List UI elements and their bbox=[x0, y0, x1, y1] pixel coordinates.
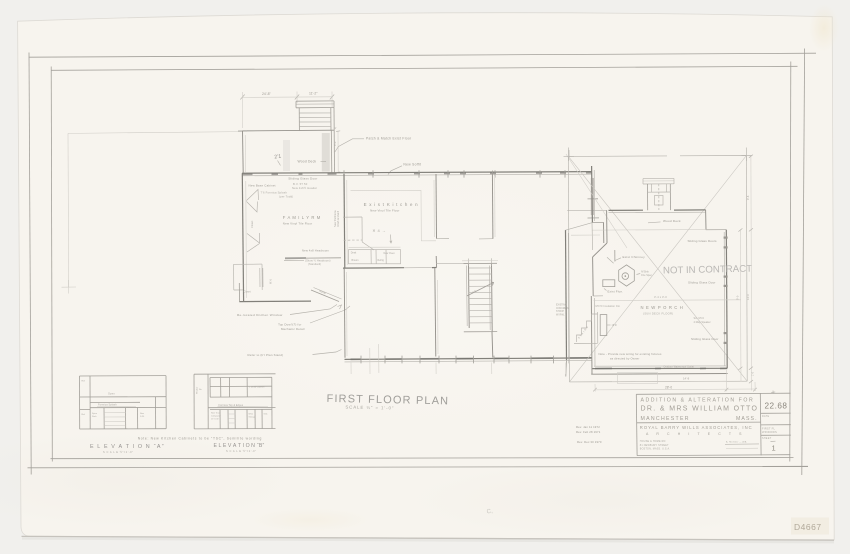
svg-text:18 R: 18 R bbox=[612, 324, 617, 327]
svg-text:Wood Deck: Wood Deck bbox=[298, 160, 317, 164]
svg-text:New Vinyl Tile Floor: New Vinyl Tile Floor bbox=[283, 221, 313, 225]
svg-text:Spice: Spice bbox=[92, 413, 98, 415]
svg-text:1 Metal Cabinet: 1 Metal Cabinet bbox=[249, 386, 265, 389]
svg-text:Sliding Glass Door: Sliding Glass Door bbox=[691, 337, 719, 341]
svg-text:Rev. Dec 30 1970: Rev. Dec 30 1970 bbox=[577, 440, 602, 444]
svg-text:Exist Flue.: Exist Flue. bbox=[608, 290, 624, 294]
svg-text:Closet: Closet bbox=[250, 220, 254, 228]
svg-text:4-Way Speaker: 4-Way Speaker bbox=[694, 321, 711, 324]
svg-text:Desk: Desk bbox=[351, 251, 357, 254]
svg-text:Outdoor Waterproof Outlet: Outdoor Waterproof Outlet bbox=[664, 365, 695, 368]
svg-text:New Trash: New Trash bbox=[211, 413, 221, 415]
svg-text:Refer to (b’l Plan Stand): Refer to (b’l Plan Stand) bbox=[248, 353, 284, 357]
svg-text:14’-0: 14’-0 bbox=[746, 294, 750, 300]
svg-text:as directed by Owner: as directed by Owner bbox=[610, 357, 639, 361]
svg-text:Top Dow’l(?) for: Top Dow’l(?) for bbox=[278, 322, 301, 326]
svg-text:New Oven: New Oven bbox=[384, 252, 396, 255]
svg-text:SHEET: SHEET bbox=[762, 437, 772, 440]
svg-text:New Soffit: New Soffit bbox=[403, 162, 421, 166]
svg-text:1’-0: 1’-0 bbox=[752, 371, 755, 376]
svg-text:Sliding Glass Doors: Sliding Glass Doors bbox=[688, 239, 718, 243]
svg-text:4’-3: 4’-3 bbox=[333, 141, 337, 146]
svg-text:ADDITION & ALTERATION FOR: ADDITION & ALTERATION FOR bbox=[641, 398, 755, 404]
svg-text:Compactor: Compactor bbox=[211, 415, 221, 418]
svg-text:Broom: Broom bbox=[352, 259, 359, 262]
svg-text:ROYAL BARRY WILLS ASSOCIATES,: ROYAL BARRY WILLS ASSOCIATES, INC bbox=[640, 425, 753, 430]
svg-text:(SUN DECK FLOOR): (SUN DECK FLOOR) bbox=[643, 311, 673, 315]
svg-text:STOOP: STOOP bbox=[556, 311, 564, 313]
svg-text:Refrig: Refrig bbox=[378, 259, 385, 262]
svg-text:WINDOWS: WINDOWS bbox=[762, 430, 777, 434]
svg-text:New Base Cabinet: New Base Cabinet bbox=[249, 184, 276, 188]
svg-text:(Standard): (Standard) bbox=[308, 262, 321, 266]
svg-text:Fire Spec: Fire Spec bbox=[641, 274, 652, 277]
svg-text:New: New bbox=[140, 413, 145, 415]
svg-text:New Vinyl Tile Floor: New Vinyl Tile Floor bbox=[370, 208, 400, 212]
svg-text:Ref: Ref bbox=[82, 381, 86, 383]
svg-text:D4667: D4667 bbox=[794, 522, 822, 532]
svg-text:NOT IN CONTRACT: NOT IN CONTRACT bbox=[663, 264, 752, 277]
svg-text:New Partitions: New Partitions bbox=[333, 210, 337, 227]
svg-text:Exist Chimney: Exist Chimney bbox=[623, 255, 646, 259]
svg-text:11’-2”: 11’-2” bbox=[309, 92, 317, 96]
svg-text:Finish to Match: Finish to Match bbox=[337, 210, 340, 227]
svg-text:MANCHESTER: MANCHESTER bbox=[641, 416, 690, 422]
svg-text:A R C H I T E C T S: A R C H I T E C T S bbox=[646, 432, 745, 436]
svg-text:Rev. Jan 11 1972: Rev. Jan 11 1972 bbox=[576, 425, 600, 429]
svg-text:New 4x6½ Header: New 4x6½ Header bbox=[292, 186, 317, 190]
svg-text:(Show ½ Headroom): (Show ½ Headroom) bbox=[305, 259, 331, 263]
svg-text:15” D.W.: 15” D.W. bbox=[211, 419, 219, 421]
svg-text:Wood Deck: Wood Deck bbox=[663, 219, 681, 223]
svg-text:Rev. Feb 28 1971: Rev. Feb 28 1971 bbox=[576, 430, 601, 434]
svg-text:HOUSE & HOME RD: HOUSE & HOME RD bbox=[640, 440, 666, 443]
svg-text:Re-located Kitchen Window: Re-located Kitchen Window bbox=[237, 313, 283, 317]
svg-text:F A M I L Y R M: F A M I L Y R M bbox=[283, 215, 321, 220]
svg-text:E x i s t K i t c h e n: E x i s t K i t c h e n bbox=[364, 202, 419, 207]
svg-text:Sliding Glass Door: Sliding Glass Door bbox=[288, 176, 317, 180]
svg-text:Ref: Ref bbox=[82, 414, 86, 416]
svg-text:(per Todd): (per Todd) bbox=[279, 195, 293, 199]
svg-text:BOSTON, MASS. U.S.A.: BOSTON, MASS. U.S.A. bbox=[640, 448, 671, 451]
svg-text:Scr. M’t’d: Scr. M’t’d bbox=[694, 317, 705, 320]
svg-text:S C A L E ½”=1’-0”: S C A L E ½”=1’-0” bbox=[226, 449, 256, 453]
svg-text:Mechanic Detail: Mechanic Detail bbox=[281, 327, 305, 331]
svg-text:SCALE ¼” = 1’-0”: SCALE ¼” = 1’-0” bbox=[345, 405, 394, 411]
svg-text:FIRST FL: FIRST FL bbox=[762, 427, 776, 431]
svg-text:W.H.: W.H. bbox=[270, 278, 273, 284]
svg-text:New 4x8 Headroom: New 4x8 Headroom bbox=[302, 248, 330, 252]
svg-text:Patch & Match Exist Floor: Patch & Match Exist Floor bbox=[366, 137, 412, 141]
svg-text:24’-8”: 24’-8” bbox=[262, 92, 271, 96]
svg-text:M’Sink: M’Sink bbox=[641, 271, 649, 274]
svg-text:✕ 4 →: ✕ 4 → bbox=[372, 228, 386, 233]
svg-text:Closet: Closet bbox=[244, 291, 251, 294]
svg-text:E L E V A T I O N “B”: E L E V A T I O N “B” bbox=[214, 443, 265, 449]
svg-text:9’-6: 9’-6 bbox=[746, 195, 750, 200]
svg-text:S C A L E ½”=1’-0”: S C A L E ½”=1’-0” bbox=[103, 450, 133, 454]
svg-text:3’-4 x 3’-0: 3’-4 x 3’-0 bbox=[654, 295, 667, 299]
svg-text:D.W.: D.W. bbox=[140, 416, 145, 418]
svg-text:1: 1 bbox=[772, 444, 776, 453]
svg-text:A. Member — AIA: A. Member — AIA bbox=[726, 440, 747, 443]
svg-text:CONCRETE: CONCRETE bbox=[556, 308, 569, 310]
svg-text:E L E V A T I O N “A”: E L E V A T I O N “A” bbox=[90, 444, 165, 450]
svg-text:M’F’D Insulation Clo: M’F’D Insulation Clo bbox=[596, 305, 621, 308]
svg-text:Note: New Kitchen Cabinets to: Note: New Kitchen Cabinets to be “TSC”, … bbox=[138, 436, 262, 440]
svg-text:2’1: 2’1 bbox=[274, 154, 282, 161]
svg-text:Sliding Glass Door: Sliding Glass Door bbox=[688, 281, 716, 285]
svg-text:DR. & MRS WILLIAM OTTO: DR. & MRS WILLIAM OTTO bbox=[641, 405, 759, 412]
svg-text:Window: Window bbox=[197, 386, 199, 394]
svg-text:MASS.: MASS. bbox=[736, 416, 758, 422]
svg-text:81 NEWBURY STREET: 81 NEWBURY STREET bbox=[640, 444, 669, 447]
svg-text:14’-8: 14’-8 bbox=[683, 377, 690, 381]
svg-text:28’-0: 28’-0 bbox=[665, 385, 672, 389]
svg-text:N E W P O R C H: N E W P O R C H bbox=[641, 305, 684, 310]
svg-text:DATE: DATE bbox=[762, 415, 770, 418]
svg-text:22.68: 22.68 bbox=[765, 401, 788, 410]
svg-text:7’6 Formica Splash: 7’6 Formica Splash bbox=[261, 190, 288, 194]
svg-text:Sink: Sink bbox=[264, 414, 268, 416]
svg-text:W/ RAIL: W/ RAIL bbox=[556, 313, 565, 316]
svg-text:Storage: Storage bbox=[249, 416, 257, 419]
svg-text:Rack: Rack bbox=[92, 416, 97, 418]
svg-text:B.V. 5T 50: B.V. 5T 50 bbox=[293, 182, 308, 186]
svg-text:EXISTING: EXISTING bbox=[556, 305, 567, 307]
svg-text:9’-0: 9’-0 bbox=[735, 295, 739, 300]
svg-text:Open: Open bbox=[108, 393, 115, 396]
